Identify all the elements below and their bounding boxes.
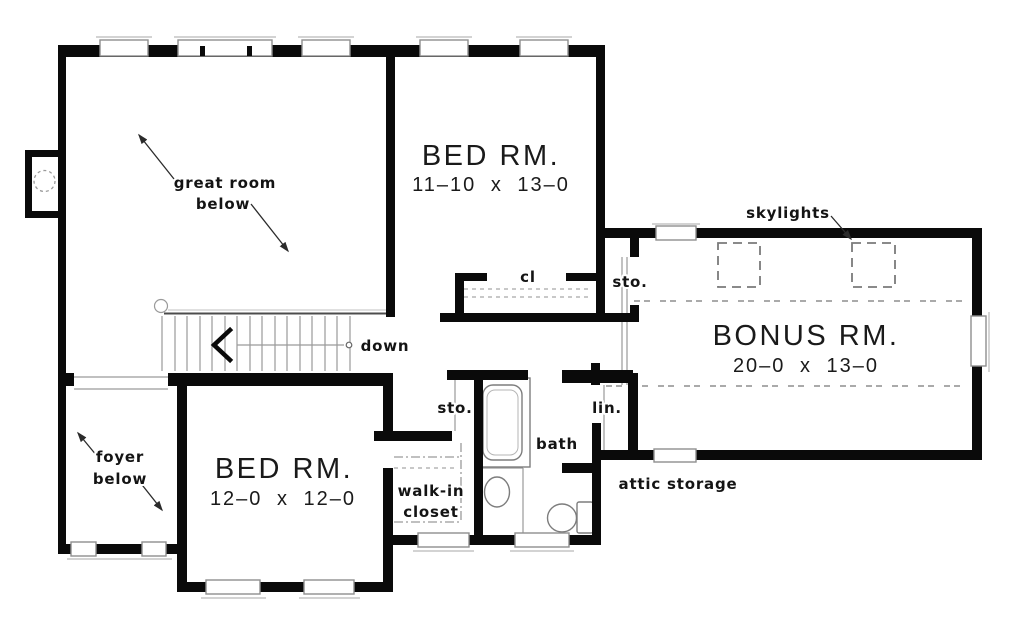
window [654,449,696,462]
window-triple [178,40,272,56]
bath-linen-divider [592,423,601,465]
bedroom-lower-dims: 12–0 x 12–0 [210,488,356,510]
staircase [162,316,352,371]
toilet-bowl [548,504,577,532]
closet-wall-bottom [440,313,638,322]
chimney-wall [25,211,62,218]
wall-junction-stub [591,363,600,385]
skylight-2 [852,243,895,287]
walkin-label-2: closet [403,503,458,521]
bath-wall-right [592,463,601,545]
window [206,580,260,594]
wall-stair-bottom [168,373,393,386]
bathtub [483,385,522,460]
bedroom-lower-name: BED RM. [215,453,353,485]
walls [25,45,982,592]
window [515,533,569,547]
bedroom-upper-dims: 11–10 x 13–0 [412,174,570,196]
window [418,533,469,547]
skylights-label: skylights [746,204,830,222]
linen-label: lin. [592,399,622,417]
sink [485,477,510,507]
bedroom-wall-right [383,468,393,592]
chimney-wall [25,150,32,218]
floor-plan-canvas: great room below BED RM. 11–10 x 13–0 sk… [0,0,1024,624]
closet-wall-top [566,273,596,281]
stair-treads [162,316,350,371]
stair-direction-arrow-icon [214,330,230,360]
closet-wall-top [455,273,487,281]
window [520,40,568,56]
wall-bedroom-right [596,45,605,322]
down-leader-dot [346,342,352,348]
foyer-label: foyer [96,448,144,466]
bath-fixtures [477,378,593,533]
wall-greatroom-bedroom [386,45,395,317]
window [302,40,350,56]
skylight-1 [718,243,760,287]
great-room-arrow-up [139,135,174,179]
toilet-tank [577,502,593,533]
stairs-down-label: down [361,337,410,355]
bonus-wall-left [630,238,639,257]
great-room-label: great room [174,174,276,192]
window [420,40,468,56]
window-mullion [200,46,205,56]
foyer-label-2: below [93,470,147,488]
bonus-room-name: BONUS RM. [713,320,900,352]
storage-hall-label: sto. [612,273,647,291]
chimney-flue [34,171,55,192]
window [71,542,96,556]
bath-wall-left [474,370,483,545]
bonus-wall-left [628,373,638,460]
bath-label: bath [536,435,578,453]
bath-wall-top [447,370,528,380]
exterior-wall-left [58,45,66,554]
great-room-label-2: below [196,195,250,213]
walkin-wall-top [374,431,452,441]
window [304,580,354,594]
wall-stub-left [66,373,74,386]
floor-plan-page: great room below BED RM. 11–10 x 13–0 sk… [0,0,1024,624]
window [142,542,166,556]
foyer-arrow-up [78,433,97,456]
storage-bath-label: sto. [437,399,472,417]
window [656,226,696,240]
bedroom-wall-left [177,374,187,592]
window-mullion [247,46,252,56]
window [971,316,986,366]
great-room-arrow-down [251,204,288,251]
window [100,40,148,56]
closet-label: cl [520,268,536,286]
walkin-label: walk-in [398,482,465,500]
stair-newel-curl [155,300,168,313]
bedroom-upper-name: BED RM. [422,140,560,172]
bonus-room-dims: 20–0 x 13–0 [733,355,879,377]
attic-storage-label: attic storage [619,475,738,493]
bedroom-wall-right [383,374,393,435]
